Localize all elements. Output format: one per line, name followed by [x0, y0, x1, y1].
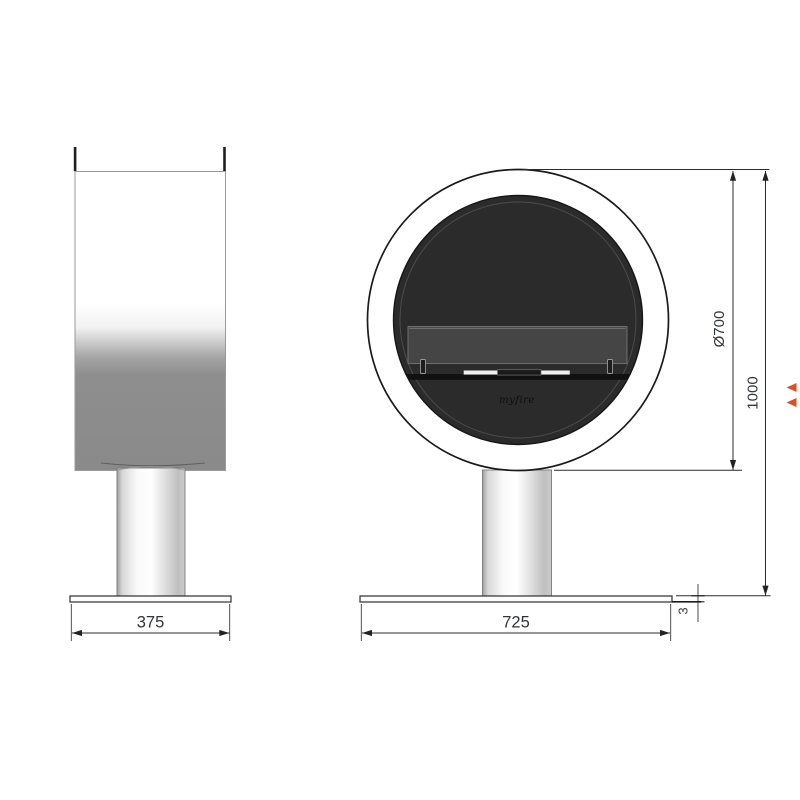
burner-pin-right	[608, 360, 613, 374]
side-view-extension-stub-right	[223, 147, 226, 171]
burner-back-panel	[408, 327, 627, 364]
front-view: myfire 725	[360, 170, 672, 642]
burner-slot-slider	[498, 370, 542, 375]
side-view-extension-stub-left	[74, 147, 77, 171]
brand-logo-text: myfire	[499, 395, 535, 406]
annotation-markers	[787, 383, 797, 407]
dim-diameter-arrow-bottom	[730, 460, 736, 470]
marker-arrow-top	[787, 383, 797, 392]
dim-375-arrow-right	[219, 630, 229, 636]
dim-height-label: 1000	[745, 376, 762, 409]
side-view-base-plate	[70, 596, 231, 602]
burner-pin-left	[421, 360, 426, 374]
front-view-firebox-disc	[394, 196, 643, 445]
dim-height-arrow-bottom	[762, 586, 768, 596]
side-view: 375	[70, 147, 231, 641]
dim-diameter-arrow-top	[730, 171, 736, 181]
dim-375-label: 375	[137, 614, 165, 632]
front-view-pedestal-column	[483, 470, 552, 596]
side-view-pedestal-column	[117, 468, 185, 596]
dim-height-arrow-top	[762, 171, 768, 181]
front-view-base-plate	[360, 596, 672, 602]
dim-725-label: 725	[502, 614, 530, 632]
marker-arrow-bottom	[787, 398, 797, 407]
dim-thickness-label: 3	[676, 607, 691, 614]
technical-drawing-canvas: 375 myfire	[0, 0, 800, 800]
dim-725-arrow-right	[660, 630, 670, 636]
dim-375-arrow-left	[72, 630, 82, 636]
side-view-body	[75, 172, 226, 471]
dim-diameter-label: Ø700	[711, 311, 728, 348]
fireplace-dimension-drawing: 375 myfire	[0, 0, 800, 800]
dim-725-arrow-left	[362, 630, 372, 636]
